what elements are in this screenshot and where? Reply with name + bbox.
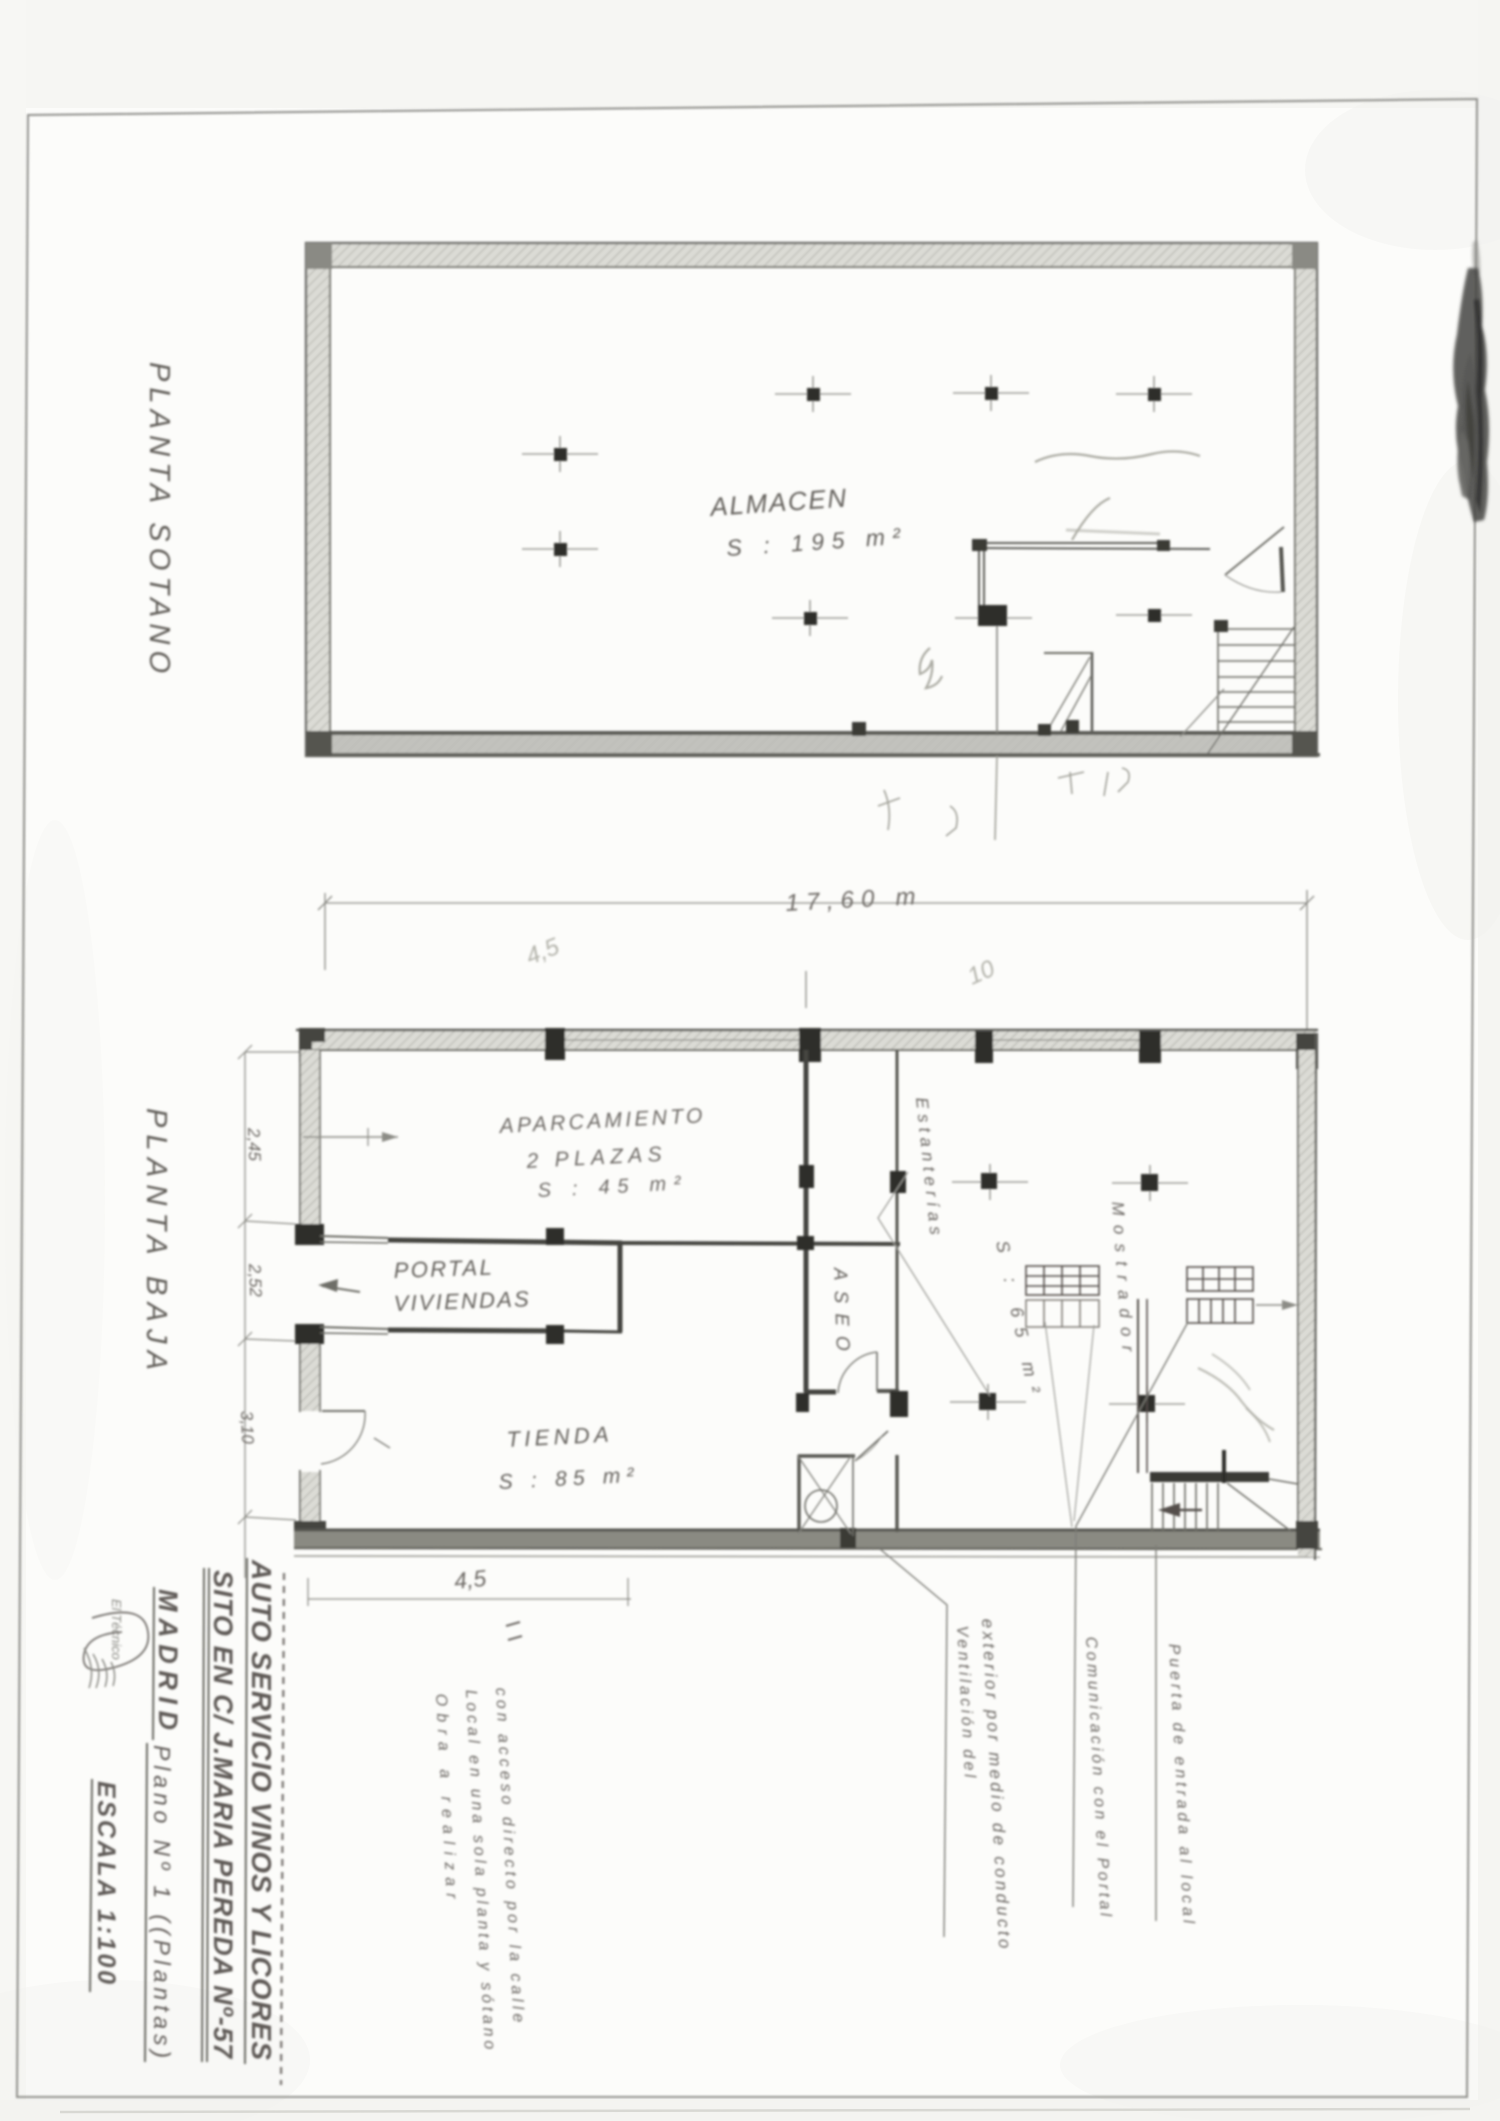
svg-text:VIVIENDAS: VIVIENDAS — [393, 1286, 531, 1316]
svg-text:2,45: 2,45 — [244, 1126, 264, 1161]
svg-text:El Técnico: El Técnico — [109, 1599, 124, 1660]
svg-text:2,52: 2,52 — [245, 1262, 265, 1297]
svg-text:MADRID: MADRID — [153, 1589, 183, 1732]
svg-text:3,10: 3,10 — [237, 1410, 257, 1444]
svg-text:ESCALA 1:100: ESCALA 1:100 — [92, 1781, 120, 1984]
svg-text:PORTAL: PORTAL — [393, 1255, 494, 1283]
svg-text:AUTO SERVICIO VINOS Y LICORES: AUTO SERVICIO VINOS Y LICORES — [246, 1559, 277, 2060]
svg-text:PLANTA BAJA: PLANTA BAJA — [140, 1108, 172, 1372]
svg-text:SITO EN C/ J.MARIA PEREDA Nº-5: SITO EN C/ J.MARIA PEREDA Nº-57 — [208, 1570, 238, 2060]
svg-text:4,5: 4,5 — [453, 1565, 488, 1594]
